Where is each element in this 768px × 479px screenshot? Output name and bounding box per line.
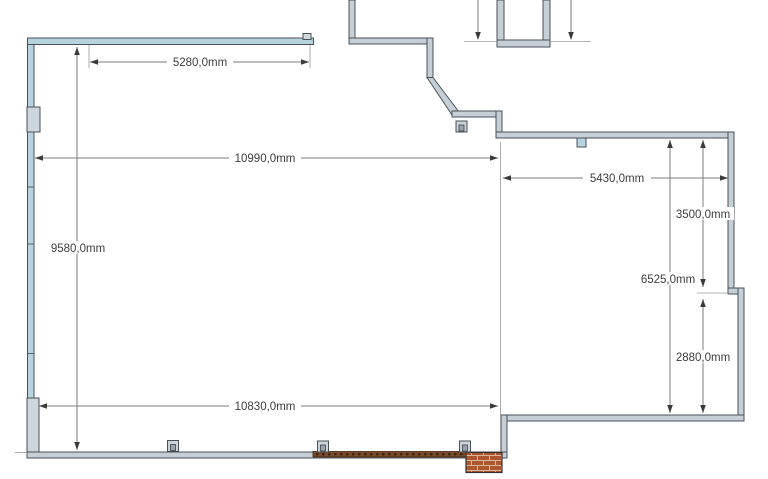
dimension-label[interactable]: 2880,0mm	[676, 352, 730, 364]
column[interactable]	[318, 441, 329, 452]
wall-mid-horizontal[interactable]	[452, 111, 502, 117]
arrow-down-icon	[568, 32, 574, 40]
dimension-5280[interactable]: 5280,0mm	[89, 45, 310, 69]
wall-top-exterior[interactable]	[28, 38, 314, 45]
floor-plan-canvas[interactable]: 5280,0mm 10990,0mm 9580,0mm 10830,0mm 54…	[0, 0, 768, 479]
dimension-label[interactable]: 3500,0mm	[676, 209, 730, 221]
arrow-up-icon	[667, 140, 673, 148]
arrow-left-icon	[90, 59, 98, 65]
floor-plan-page: 5280,0mm 10990,0mm 9580,0mm 10830,0mm 54…	[0, 0, 768, 479]
arrow-down-icon	[667, 405, 673, 413]
wall-pilaster-lower-left[interactable]	[27, 398, 39, 453]
dimension-label[interactable]: 10830,0mm	[235, 401, 296, 413]
column[interactable]	[460, 441, 471, 452]
arrow-left-icon	[503, 175, 511, 181]
dimension-10830[interactable]: 10830,0mm	[15, 399, 498, 453]
wall-upper-structure-right[interactable]	[427, 38, 433, 78]
dimension-3500[interactable]: 3500,0mm	[672, 140, 734, 287]
dimension-5430[interactable]: 5430,0mm	[503, 171, 728, 185]
column[interactable]	[168, 441, 179, 452]
dimension-label[interactable]: 10990,0mm	[235, 153, 296, 165]
dimension-chimney-left	[464, 0, 497, 42]
dimension-2880[interactable]: 2880,0mm	[672, 299, 734, 413]
arrow-up-icon	[700, 140, 706, 148]
wall-annex-right-lower[interactable]	[738, 288, 744, 421]
wall-chimney-bottom[interactable]	[497, 40, 550, 47]
arrow-down-icon	[700, 279, 706, 287]
wall-pilaster-upper-left[interactable]	[27, 107, 40, 132]
dimension-label[interactable]: 5430,0mm	[590, 173, 644, 185]
arrow-right-icon	[720, 175, 728, 181]
dimension-label[interactable]: 6525,0mm	[641, 274, 695, 286]
arrow-left-icon	[35, 155, 43, 161]
wall-annex-bottom[interactable]	[501, 415, 744, 421]
arrow-up-icon	[700, 299, 706, 307]
dimension-chimney-right	[550, 0, 591, 42]
dimension-9580[interactable]: 9580,0mm	[46, 47, 110, 450]
wall-upper-structure-left[interactable]	[349, 0, 355, 44]
walls-group	[27, 0, 744, 473]
dimension-label[interactable]: 9580,0mm	[51, 243, 105, 255]
arrow-right-icon	[490, 155, 498, 161]
wall-upper-structure-top[interactable]	[349, 38, 433, 44]
wall-connector-vertical[interactable]	[501, 415, 507, 455]
arrow-down-icon	[475, 32, 481, 40]
brick-pier[interactable]	[466, 453, 502, 473]
column[interactable]	[456, 121, 467, 132]
arrow-right-icon	[490, 403, 498, 409]
wall-left-exterior[interactable]	[28, 38, 35, 453]
wall-top-tab[interactable]	[303, 34, 311, 40]
arrow-down-icon	[74, 442, 80, 450]
wall-annex-top[interactable]	[496, 132, 734, 138]
dimension-10990[interactable]: 10990,0mm	[35, 151, 498, 165]
arrow-down-icon	[700, 405, 706, 413]
arrow-left-icon	[39, 403, 47, 409]
arrow-up-icon	[74, 47, 80, 55]
wall-annex-top-tab[interactable]	[577, 138, 586, 147]
columns-group	[168, 121, 471, 452]
dimension-label[interactable]: 5280,0mm	[173, 57, 227, 69]
arrow-right-icon	[301, 59, 309, 65]
